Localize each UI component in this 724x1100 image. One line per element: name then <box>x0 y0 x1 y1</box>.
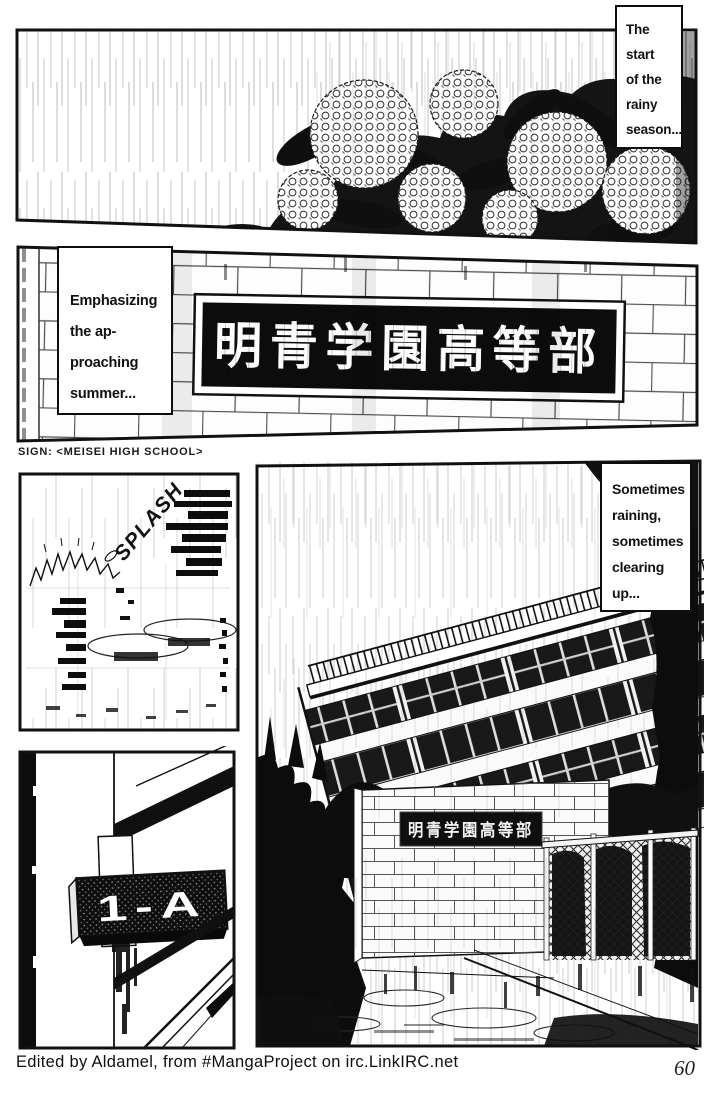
dark-wall-strip <box>20 752 36 1048</box>
caption-line: clearing <box>612 554 690 580</box>
panel-classroom-sign: 1-A <box>16 746 238 1052</box>
manga-page: 明青学園高等部 SPLASH <box>0 0 724 1100</box>
classroom-sign-text: 1-A <box>96 883 208 930</box>
caption-sometimes-raining: Sometimes raining, sometimes clearing up… <box>600 462 692 612</box>
wall-edge-strip <box>17 244 39 444</box>
caption-line: rainy <box>626 92 681 117</box>
caption-line: Emphasizing <box>70 286 171 317</box>
caption-line: proaching <box>70 348 171 379</box>
panel-rain-puddles: SPLASH <box>16 468 242 734</box>
panel-rain-hydrangeas <box>12 22 700 248</box>
caption-line: start <box>626 42 681 67</box>
caption-line: the ap- <box>70 317 171 348</box>
caption-approaching-summer: Emphasizing the ap- proaching summer... <box>57 246 173 415</box>
school-name-plaque: 明青学園高等部 <box>193 294 625 401</box>
page-number: 60 <box>674 1056 695 1081</box>
scanlation-credit: Edited by Aldamel, from #MangaProject on… <box>16 1053 458 1072</box>
caption-line: up... <box>612 580 690 606</box>
caption-line: The <box>626 17 681 42</box>
translator-note: SIGN: <MEISEI HIGH SCHOOL> <box>18 446 203 458</box>
caption-line: Sometimes <box>612 476 690 502</box>
caption-line: of the <box>626 67 681 92</box>
caption-start-of-rainy-season: The start of the rainy season... <box>615 5 683 149</box>
caption-line: summer... <box>70 379 171 410</box>
caption-line: sometimes <box>612 528 690 554</box>
hydrangea-artwork <box>17 30 698 248</box>
caption-line: season... <box>626 117 681 142</box>
caption-line: raining, <box>612 502 690 528</box>
